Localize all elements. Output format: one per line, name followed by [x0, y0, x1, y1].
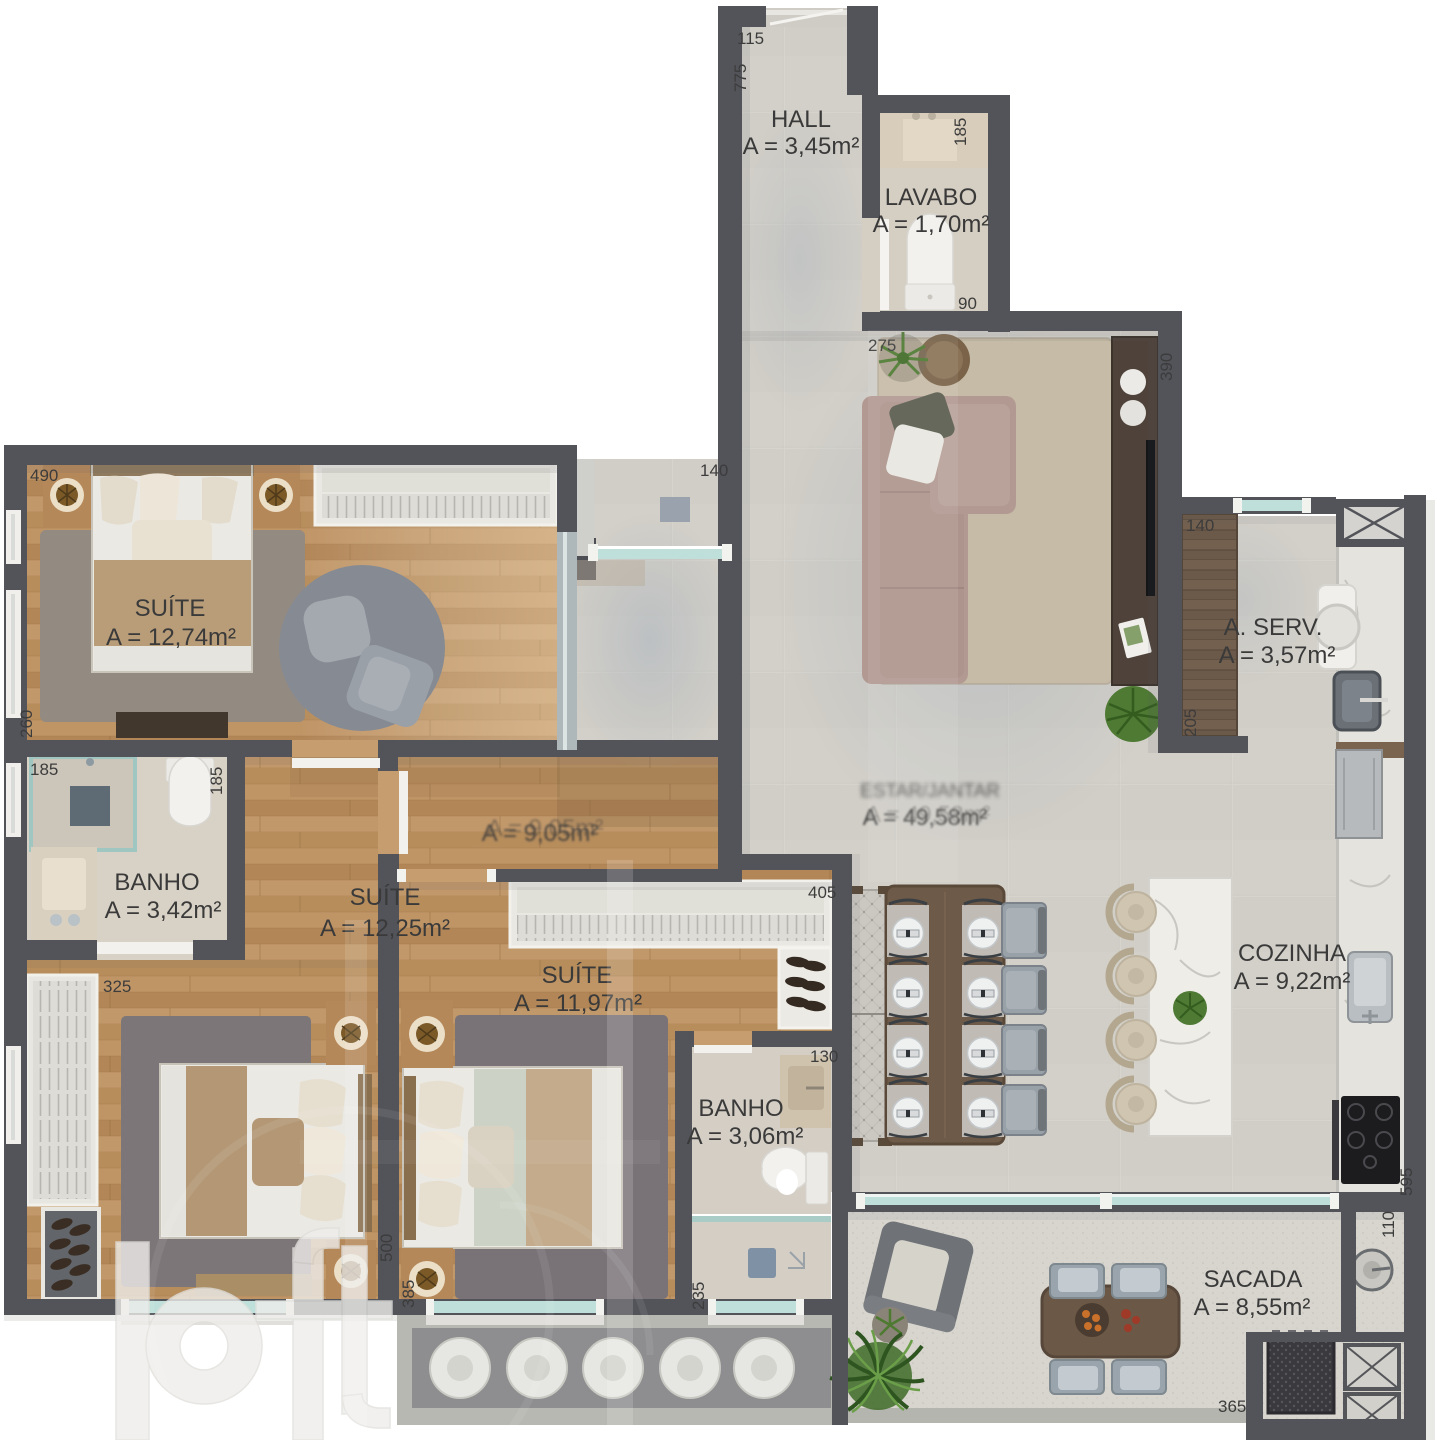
svg-text:115: 115	[737, 29, 764, 48]
svg-text:235: 235	[689, 1282, 708, 1310]
svg-text:SUÍTE: SUÍTE	[135, 595, 206, 622]
svg-text:185: 185	[207, 767, 226, 795]
svg-text:A = 3,06m²: A = 3,06m²	[687, 1123, 804, 1150]
svg-text:A = 9,22m²: A = 9,22m²	[1234, 968, 1351, 995]
svg-text:500: 500	[377, 1234, 396, 1262]
svg-text:HALL: HALL	[771, 106, 831, 133]
svg-text:260: 260	[17, 710, 36, 738]
svg-text:SUÍTE: SUÍTE	[542, 962, 613, 989]
svg-text:A = 12,25m²: A = 12,25m²	[320, 915, 450, 942]
svg-text:A = 3,42m²: A = 3,42m²	[105, 897, 222, 924]
svg-text:385: 385	[399, 1280, 418, 1308]
svg-text:SUÍTE: SUÍTE	[350, 884, 421, 911]
svg-text:185: 185	[30, 760, 58, 779]
svg-text:COZINHA: COZINHA	[1238, 940, 1346, 967]
svg-text:140: 140	[1186, 516, 1214, 535]
svg-text:490: 490	[30, 466, 58, 485]
svg-text:365: 365	[1218, 1397, 1246, 1416]
svg-text:A = 12,74m²: A = 12,74m²	[106, 624, 236, 651]
svg-text:140: 140	[700, 461, 728, 480]
svg-text:A = 8,55m²: A = 8,55m²	[1194, 1294, 1311, 1321]
svg-text:130: 130	[810, 1047, 838, 1066]
svg-text:595: 595	[1397, 1168, 1416, 1196]
svg-text:775: 775	[731, 64, 750, 92]
svg-text:A. SERV.: A. SERV.	[1224, 614, 1323, 641]
svg-text:205: 205	[1181, 709, 1200, 737]
svg-text:A = 1,70m²: A = 1,70m²	[873, 211, 990, 238]
svg-text:A = 9,05m²: A = 9,05m²	[487, 815, 604, 842]
svg-text:325: 325	[103, 977, 131, 996]
svg-text:BANHO: BANHO	[698, 1095, 783, 1122]
svg-text:LAVABO: LAVABO	[885, 184, 977, 211]
svg-text:390: 390	[1157, 353, 1176, 381]
svg-text:SACADA: SACADA	[1204, 1266, 1303, 1293]
svg-text:BANHO: BANHO	[114, 869, 199, 896]
svg-text:A = 3,57m²: A = 3,57m²	[1219, 642, 1336, 669]
svg-text:A = 3,45m²: A = 3,45m²	[743, 133, 860, 160]
svg-text:110: 110	[1379, 1211, 1398, 1238]
svg-text:185: 185	[951, 118, 970, 146]
svg-text:90: 90	[958, 294, 977, 313]
svg-text:405: 405	[808, 883, 836, 902]
